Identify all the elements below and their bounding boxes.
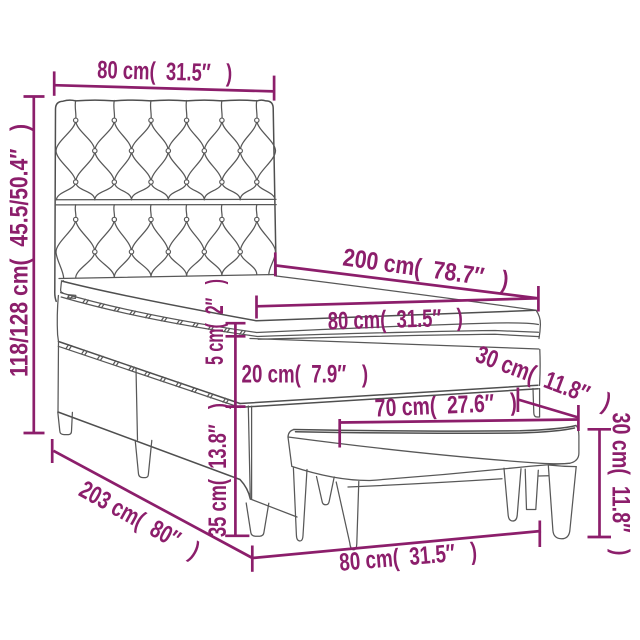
svg-text:20 cm( 7.9″ ): 20 cm( 7.9″ ) [242,361,369,389]
svg-text:35 cm( 13.8″ ): 35 cm( 13.8″ ) [204,403,232,537]
svg-text:80 cm( 31.5″ ): 80 cm( 31.5″ ) [97,56,233,88]
svg-text:80 cm( 31.5″ ): 80 cm( 31.5″ ) [327,304,463,336]
svg-text:5 cm( 2″ ): 5 cm( 2″ ) [201,279,229,365]
svg-text:30 cm( 11.8″ ): 30 cm( 11.8″ ) [607,413,635,556]
svg-text:118/128 cm( 45.5/50.4″ ): 118/128 cm( 45.5/50.4″ ) [6,124,34,377]
